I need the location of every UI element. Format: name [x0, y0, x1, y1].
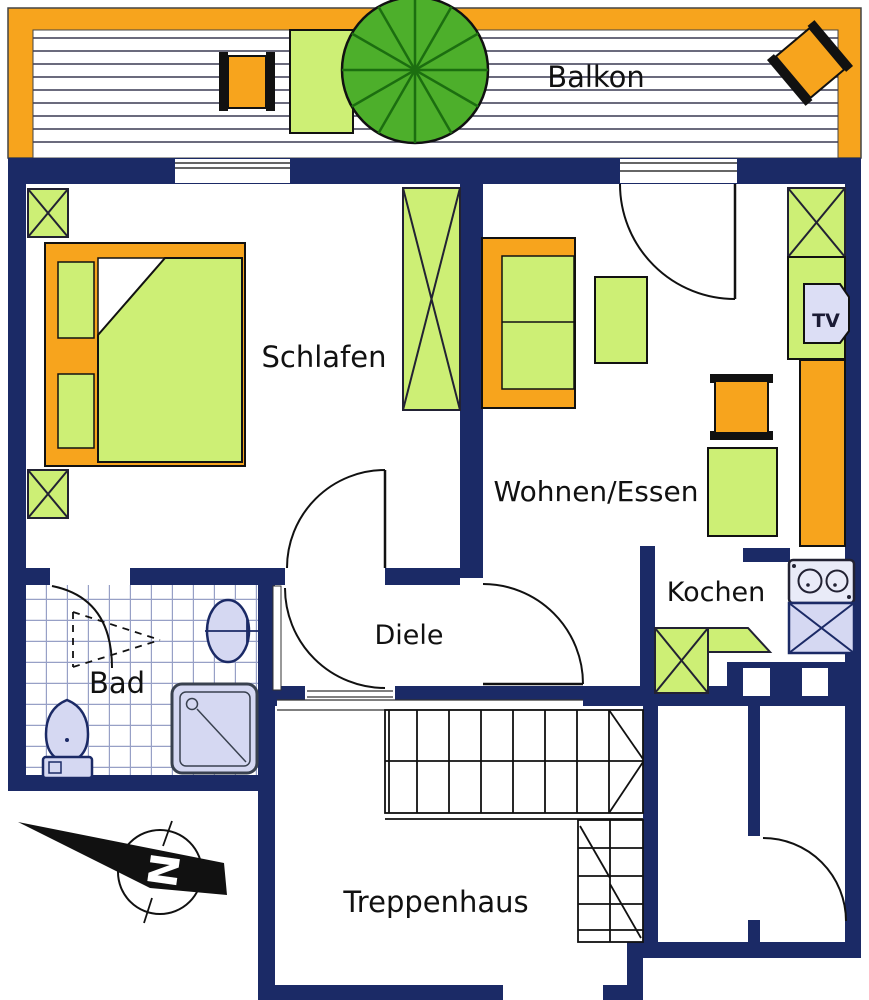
bedroom-label: Schlafen — [262, 340, 387, 374]
small-room-door-opening — [748, 836, 760, 920]
wardrobe-icon — [28, 189, 68, 237]
wall-stairwell-bottom-right — [603, 985, 640, 1000]
kitchen-label: Kochen — [667, 577, 766, 608]
stairs-upper-flight — [385, 710, 643, 819]
wall-bedroom-living — [460, 184, 483, 578]
shower-icon — [172, 684, 257, 773]
bedroom-door-opening — [285, 568, 385, 585]
stairwell: Treppenhaus — [277, 700, 643, 942]
coffee-table-icon — [595, 277, 647, 363]
tv-icon: TV — [804, 284, 849, 343]
bed-icon — [45, 243, 245, 466]
wall-left — [8, 158, 26, 791]
bedroom-door-arc — [287, 470, 385, 568]
wall-rooms-divider-lower — [748, 920, 760, 942]
bottom-right-rooms — [763, 838, 846, 921]
north-compass: N — [18, 821, 227, 923]
wall-kitchen-left — [640, 546, 655, 704]
bath-door-opening — [50, 568, 130, 585]
bathroom-label: Bad — [89, 666, 145, 700]
cabinet-icon — [788, 188, 845, 257]
dining-chair-icon — [710, 374, 773, 440]
wall-right — [845, 158, 861, 958]
wall-stairwell-bottom-left — [258, 985, 503, 1000]
bathroom: Bad — [26, 585, 258, 778]
north-arrow-icon — [18, 822, 227, 895]
stair-landing-strip — [277, 700, 583, 710]
floor-plan: Balkon — [0, 0, 869, 1000]
hallway-label: Diele — [374, 620, 443, 651]
stairwell-label: Treppenhaus — [342, 885, 528, 919]
hall-door-arc — [285, 588, 385, 688]
parasol-icon — [342, 0, 488, 143]
wall-bottom-right-band — [627, 942, 861, 958]
balcony: Balkon — [8, 0, 861, 158]
balcony-label: Balkon — [547, 60, 645, 94]
sofa-icon — [482, 238, 575, 408]
stairs-down-flight — [578, 820, 643, 942]
tv-label: TV — [812, 310, 840, 332]
sideboard-icon — [800, 360, 845, 546]
kitchen-window — [743, 668, 770, 696]
floor-plan-svg: Balkon — [0, 0, 869, 1000]
bath-door-leaf — [273, 586, 281, 690]
small-room-door-arc — [763, 838, 846, 921]
dining-table-icon — [708, 448, 777, 536]
north-letter: N — [137, 850, 187, 890]
balcony-chair-icon — [219, 52, 275, 111]
stove-icon — [789, 560, 854, 603]
sink-cabinet-icon — [789, 603, 854, 653]
tall-wardrobe-icon — [403, 188, 460, 410]
hall-living-door-opening — [460, 578, 483, 684]
wall-rooms-divider-upper — [748, 706, 760, 836]
wardrobe-icon — [28, 470, 68, 518]
living-door-arc — [483, 584, 583, 684]
wall-kitchen-stub — [743, 548, 790, 562]
kitchen-window — [802, 668, 828, 696]
wall-stairwell-right — [643, 706, 658, 942]
living-dining-label: Wohnen/Essen — [494, 475, 699, 508]
kitchen: Kochen — [655, 560, 854, 696]
